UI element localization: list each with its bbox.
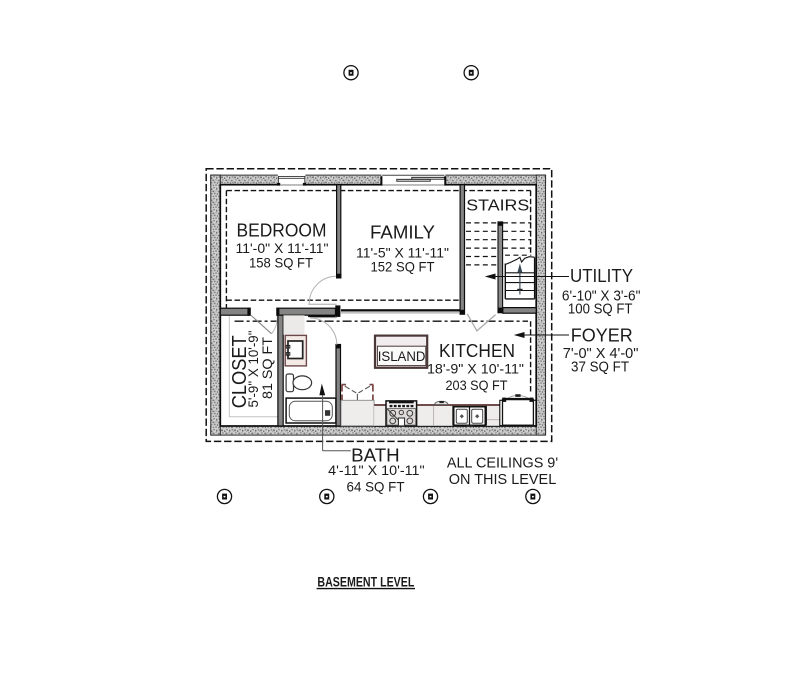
svg-text:BASEMENT LEVEL: BASEMENT LEVEL [317, 573, 414, 589]
svg-text:100 SQ FT: 100 SQ FT [568, 302, 633, 318]
svg-text:158 SQ FT: 158 SQ FT [249, 254, 313, 270]
svg-text:KITCHEN: KITCHEN [439, 341, 515, 361]
svg-text:FOYER: FOYER [571, 326, 633, 346]
svg-text:152 SQ FT: 152 SQ FT [371, 259, 435, 275]
svg-text:37 SQ FT: 37 SQ FT [571, 359, 629, 375]
svg-text:UTILITY: UTILITY [570, 266, 633, 286]
svg-text:STAIRS: STAIRS [466, 197, 529, 214]
svg-text:ON THIS LEVEL: ON THIS LEVEL [449, 471, 557, 488]
svg-text:ISLAND: ISLAND [378, 349, 426, 365]
svg-text:5'-9" X 10'-9": 5'-9" X 10'-9" [245, 330, 261, 407]
svg-text:BEDROOM: BEDROOM [237, 220, 327, 240]
svg-text:18'-9" X 10'-11": 18'-9" X 10'-11" [427, 360, 524, 376]
svg-text:203 SQ FT: 203 SQ FT [446, 377, 508, 393]
svg-text:ALL CEILINGS 9': ALL CEILINGS 9' [447, 455, 558, 472]
svg-text:FAMILY: FAMILY [370, 223, 435, 243]
svg-text:4'-11" X 10'-11": 4'-11" X 10'-11" [328, 462, 424, 478]
svg-text:81 SQ FT: 81 SQ FT [260, 337, 276, 399]
svg-text:64 SQ FT: 64 SQ FT [347, 479, 405, 495]
